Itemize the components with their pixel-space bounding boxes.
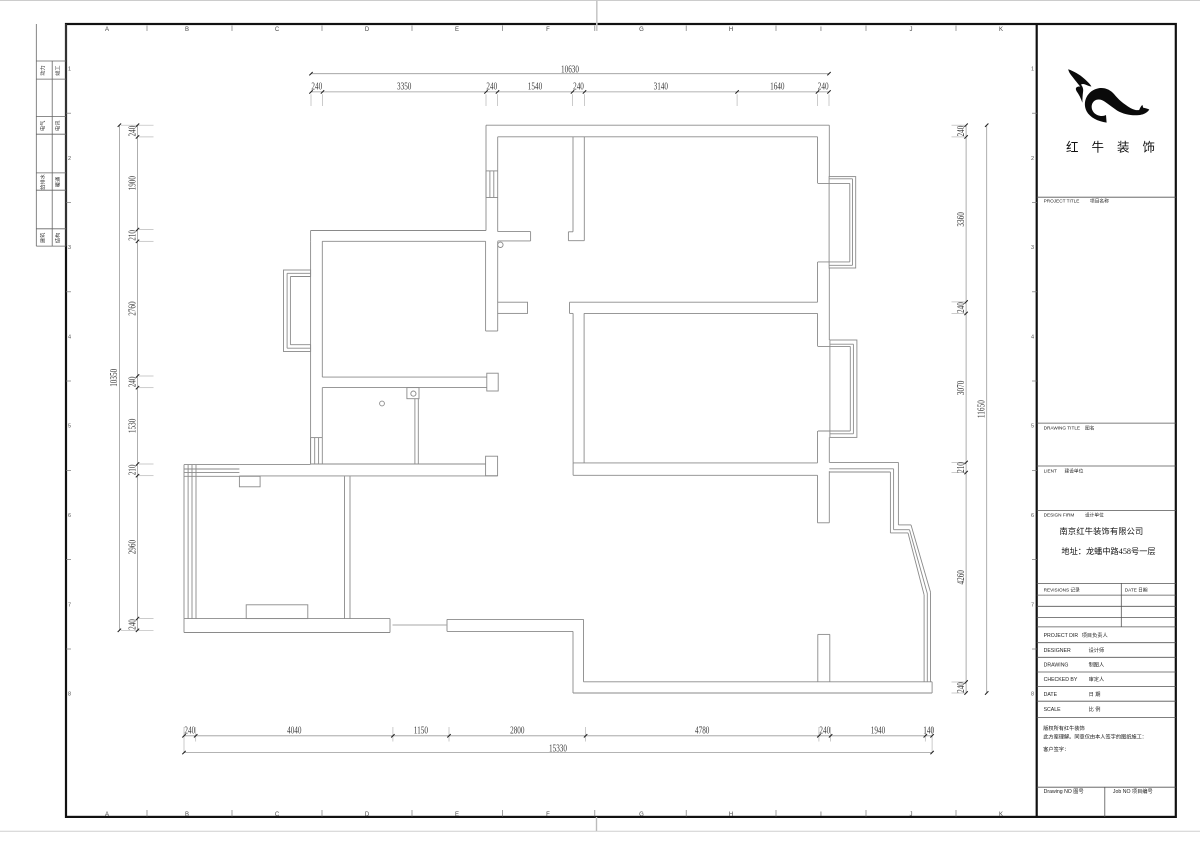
svg-text:H: H	[729, 812, 733, 818]
svg-text:审定人: 审定人	[1089, 675, 1105, 683]
svg-text:C: C	[275, 27, 280, 33]
svg-text:11650: 11650	[976, 400, 988, 418]
svg-text:LIENT: LIENT	[1044, 469, 1057, 474]
svg-text:DATE: DATE	[1044, 692, 1058, 698]
svg-text:10630: 10630	[561, 64, 579, 76]
svg-text:240: 240	[819, 725, 830, 737]
svg-text:7: 7	[68, 602, 71, 608]
svg-text:6: 6	[1031, 513, 1034, 519]
svg-text:2800: 2800	[510, 725, 525, 737]
svg-text:1150: 1150	[414, 725, 429, 737]
svg-text:REVISIONS 记录: REVISIONS 记录	[1044, 587, 1081, 593]
svg-text:D: D	[365, 27, 370, 33]
svg-text:DRAWING TITLE: DRAWING TITLE	[1044, 426, 1080, 431]
svg-text:比 例: 比 例	[1089, 705, 1101, 713]
svg-text:240: 240	[126, 125, 138, 136]
svg-text:PROJECT TITLE: PROJECT TITLE	[1044, 199, 1080, 204]
svg-text:3: 3	[1031, 245, 1034, 251]
svg-text:此方案理解。同意仅由本人签字的图纸施工：: 此方案理解。同意仅由本人签字的图纸施工：	[1043, 733, 1147, 741]
svg-text:DESIGN FIRM: DESIGN FIRM	[1044, 513, 1075, 518]
svg-text:CHECKED BY: CHECKED BY	[1044, 677, 1078, 683]
svg-text:设计单位: 设计单位	[1085, 512, 1104, 519]
svg-text:4780: 4780	[695, 725, 710, 737]
svg-text:K: K	[999, 812, 1003, 818]
svg-text:G: G	[639, 812, 644, 818]
svg-text:140: 140	[923, 725, 934, 737]
svg-text:240: 240	[311, 81, 322, 93]
svg-text:SCALE: SCALE	[1044, 707, 1062, 713]
svg-text:C: C	[275, 812, 280, 818]
svg-text:设计师: 设计师	[1089, 646, 1105, 654]
svg-text:3360: 3360	[955, 212, 967, 227]
svg-text:240: 240	[818, 81, 829, 93]
svg-text:1: 1	[1031, 67, 1034, 73]
svg-text:动力: 动力	[39, 65, 47, 75]
svg-text:电气: 电气	[39, 121, 47, 131]
svg-text:240: 240	[486, 81, 497, 93]
svg-text:210: 210	[126, 464, 138, 475]
svg-text:2760: 2760	[126, 301, 138, 316]
svg-text:7: 7	[1031, 602, 1034, 608]
svg-text:E: E	[455, 27, 459, 33]
svg-text:1: 1	[68, 67, 71, 73]
svg-text:项目负责人: 项目负责人	[1082, 631, 1108, 639]
svg-text:B: B	[185, 27, 189, 33]
svg-text:D: D	[365, 812, 370, 818]
svg-text:1640: 1640	[770, 81, 785, 93]
svg-text:1530: 1530	[126, 418, 138, 433]
svg-text:4: 4	[68, 334, 71, 340]
svg-text:5: 5	[68, 424, 71, 430]
svg-text:4260: 4260	[955, 570, 967, 585]
svg-text:Job NO 项目编号: Job NO 项目编号	[1113, 787, 1153, 795]
svg-text:给排水: 给排水	[39, 173, 47, 189]
svg-text:F: F	[546, 812, 550, 818]
svg-text:2960: 2960	[126, 540, 138, 555]
svg-text:地址：龙蟠中路458号一层: 地址：龙蟠中路458号一层	[1061, 546, 1155, 556]
svg-text:15330: 15330	[549, 742, 567, 754]
svg-text:1900: 1900	[126, 176, 138, 191]
svg-text:1940: 1940	[871, 725, 886, 737]
svg-text:H: H	[729, 27, 733, 33]
svg-text:B: B	[185, 812, 189, 818]
svg-text:10350: 10350	[108, 368, 120, 386]
svg-text:240: 240	[184, 725, 195, 737]
svg-text:电讯: 电讯	[53, 120, 61, 131]
svg-text:J: J	[910, 27, 913, 33]
svg-text:210: 210	[955, 462, 967, 473]
svg-text:240: 240	[955, 125, 967, 136]
svg-text:项目名称: 项目名称	[1090, 198, 1109, 205]
svg-text:3140: 3140	[654, 81, 669, 93]
svg-text:DESIGNER: DESIGNER	[1044, 648, 1071, 654]
svg-text:K: K	[999, 27, 1003, 33]
svg-text:4: 4	[1031, 334, 1034, 340]
svg-text:3: 3	[68, 245, 71, 251]
svg-text:制图人: 制图人	[1089, 660, 1105, 668]
svg-text:2: 2	[68, 156, 71, 162]
svg-text:DRAWING: DRAWING	[1044, 662, 1069, 668]
svg-text:3350: 3350	[397, 81, 412, 93]
svg-text:客户签字：: 客户签字：	[1043, 745, 1069, 753]
svg-text:南京红牛装饰有限公司: 南京红牛装饰有限公司	[1060, 526, 1144, 536]
svg-text:暖通: 暖通	[53, 176, 61, 187]
svg-text:1540: 1540	[528, 81, 543, 93]
svg-text:240: 240	[126, 376, 138, 387]
svg-text:版权所有红牛装饰: 版权所有红牛装饰	[1043, 724, 1085, 732]
svg-text:8: 8	[1031, 692, 1034, 698]
svg-text:240: 240	[126, 619, 138, 630]
svg-text:Drawing NO 图号: Drawing NO 图号	[1044, 788, 1084, 795]
svg-text:红牛装饰: 红牛装饰	[1066, 140, 1168, 155]
svg-text:建设单位: 建设单位	[1065, 468, 1084, 475]
svg-text:8: 8	[68, 692, 71, 698]
svg-text:A: A	[105, 27, 109, 33]
svg-text:G: G	[639, 27, 644, 33]
svg-text:240: 240	[955, 682, 967, 693]
svg-text:6: 6	[68, 513, 71, 519]
svg-text:A: A	[105, 812, 109, 818]
svg-text:4040: 4040	[287, 725, 302, 737]
svg-text:240: 240	[955, 302, 967, 313]
svg-text:竣工: 竣工	[53, 65, 61, 75]
svg-text:建筑: 建筑	[39, 232, 47, 243]
svg-text:图名: 图名	[1085, 425, 1094, 432]
svg-text:结构: 结构	[53, 233, 61, 243]
svg-text:240: 240	[573, 81, 584, 93]
svg-text:210: 210	[126, 230, 138, 241]
svg-text:E: E	[455, 812, 459, 818]
svg-text:3070: 3070	[955, 380, 967, 395]
svg-text:日 期: 日 期	[1089, 691, 1101, 698]
svg-text:2: 2	[1031, 156, 1034, 162]
svg-text:J: J	[910, 812, 913, 818]
svg-text:PROJECT DIR: PROJECT DIR	[1044, 633, 1079, 639]
svg-text:5: 5	[1031, 424, 1034, 430]
svg-text:F: F	[546, 27, 550, 33]
